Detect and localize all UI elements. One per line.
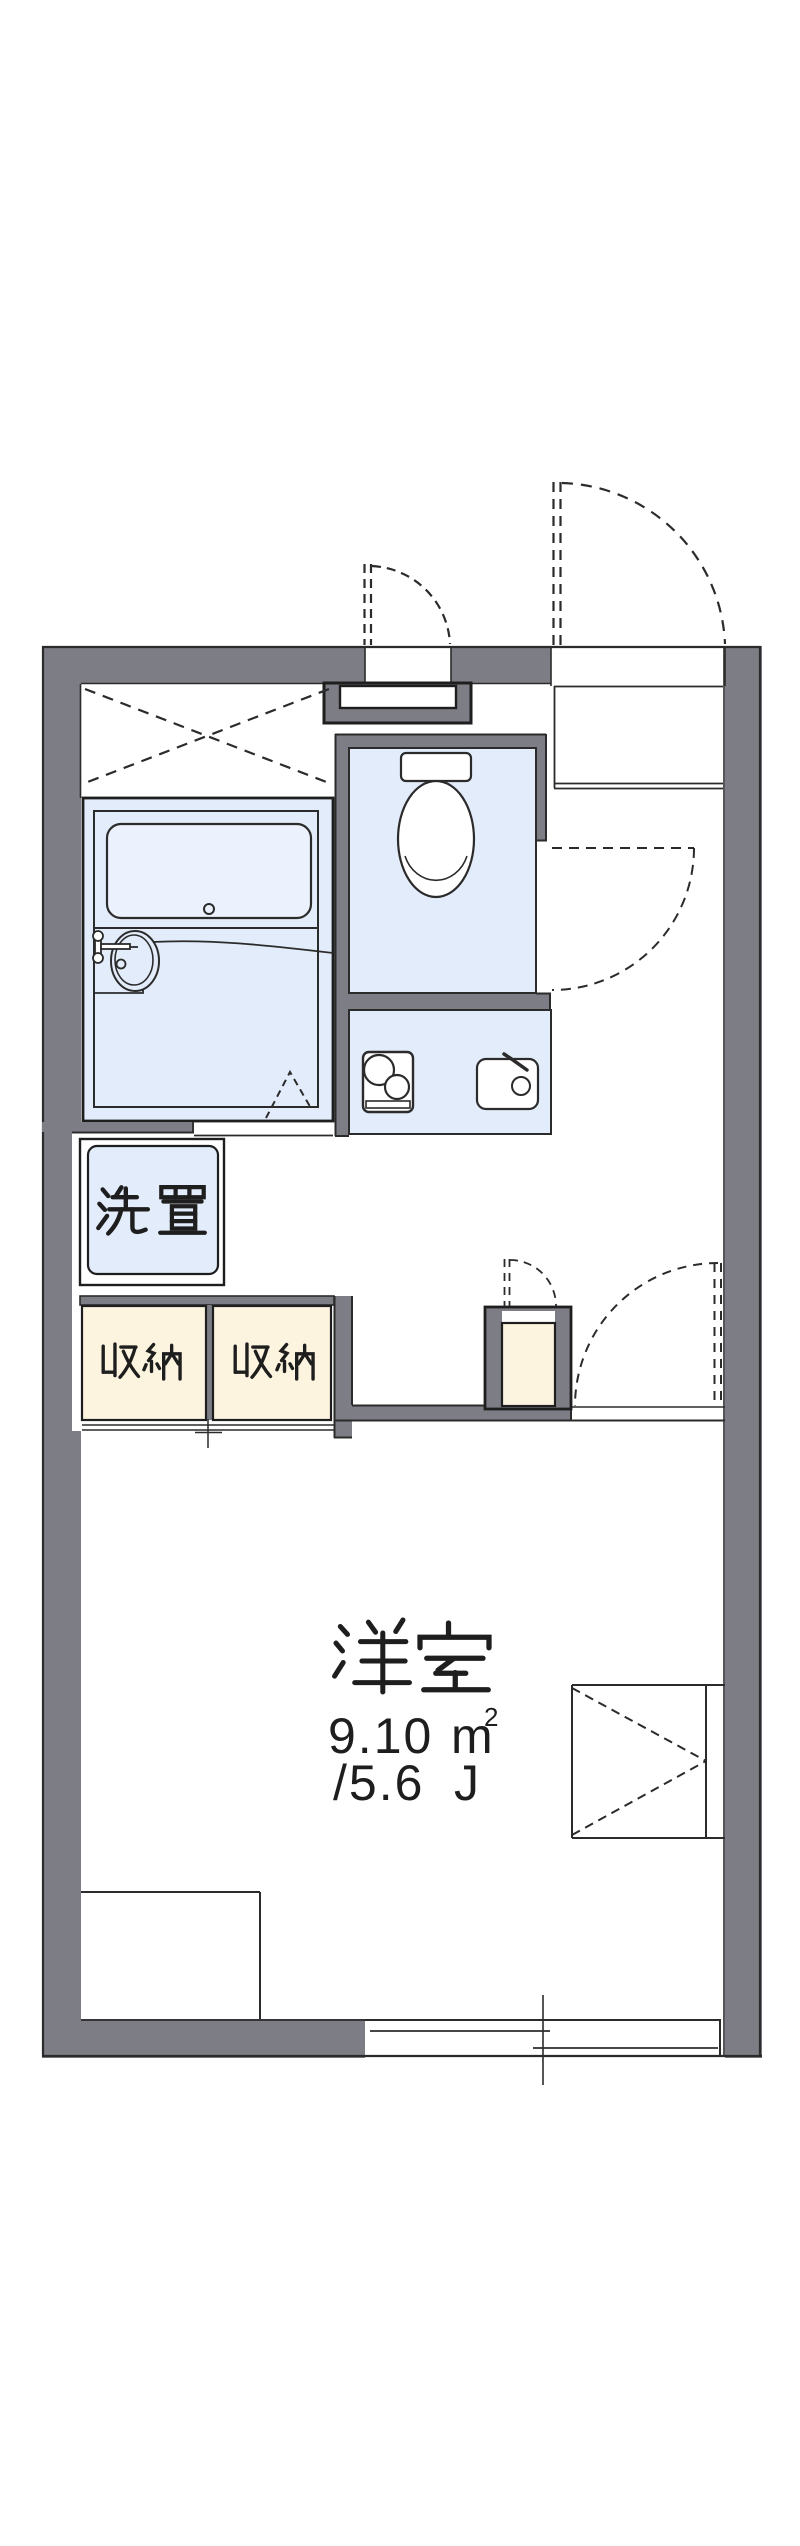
svg-text:/5.6J: /5.6J — [333, 1755, 479, 1811]
